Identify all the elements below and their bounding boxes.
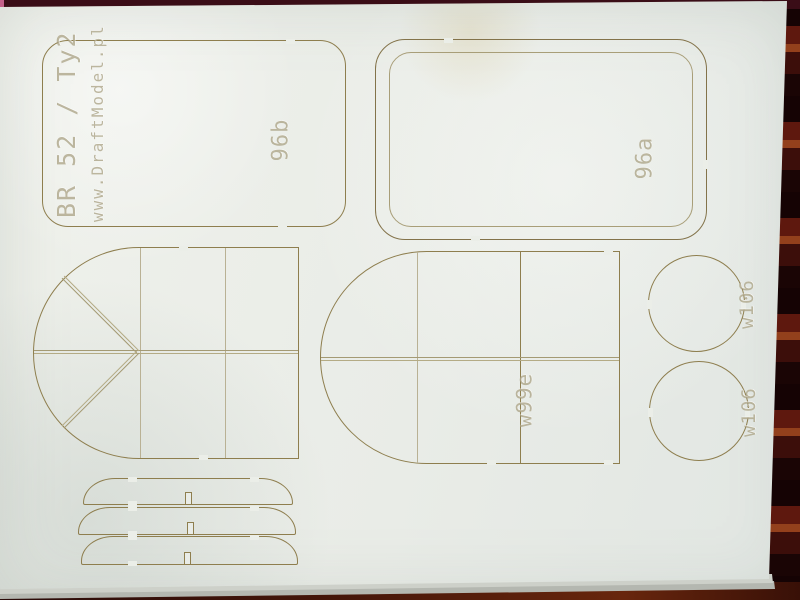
engraved-center-line — [321, 357, 619, 361]
cut-tab-gap — [250, 535, 259, 540]
cut-tab-gap — [647, 300, 652, 309]
alignment-tab — [184, 552, 191, 564]
part-disc-w106-bottom-outline — [649, 361, 749, 461]
part-label-96b: 96b — [268, 119, 293, 162]
part-label-w106-bottom: w106 — [738, 387, 760, 437]
brand-website-text: www.DraftModel.pl — [88, 44, 107, 222]
part-strip-1-outline — [83, 478, 293, 505]
part-label-w99e: w99e — [513, 373, 537, 428]
engraved-center-line — [34, 350, 298, 354]
cut-tab-gap — [487, 460, 496, 465]
model-sheet: BR 52 / Ty2 www.DraftModel.pl 96b 96a — [0, 0, 800, 600]
cut-tab-gap — [604, 460, 613, 465]
cut-tab-gap — [128, 535, 137, 540]
part-disc-w106-top-outline — [648, 255, 745, 352]
cut-tab-gap — [250, 506, 259, 511]
part-label-96a: 96a — [632, 137, 657, 180]
cut-tab-gap — [703, 160, 708, 169]
cut-tab-gap — [250, 477, 259, 482]
cut-tab-gap — [199, 455, 208, 460]
cut-tab-gap — [128, 477, 137, 482]
alignment-tab — [187, 522, 194, 534]
part-label-w106-top: w106 — [736, 279, 758, 329]
alignment-tab — [185, 492, 192, 504]
cut-tab-gap — [471, 236, 480, 241]
cut-tab-gap — [286, 39, 295, 44]
cut-tab-gap — [128, 506, 137, 511]
cut-tab-gap — [179, 246, 188, 251]
cut-tab-gap — [444, 38, 453, 43]
cut-tab-gap — [278, 223, 287, 228]
cut-tab-gap — [128, 561, 137, 566]
part-strip-3-outline — [81, 536, 298, 565]
part-strip-2-outline — [78, 507, 296, 535]
cut-tab-gap — [604, 250, 613, 255]
cut-tab-gap — [648, 408, 653, 417]
photo-frame: BR 52 / Ty2 www.DraftModel.pl 96b 96a — [0, 0, 800, 600]
brand-title-text: BR 52 / Ty2 — [52, 46, 81, 218]
